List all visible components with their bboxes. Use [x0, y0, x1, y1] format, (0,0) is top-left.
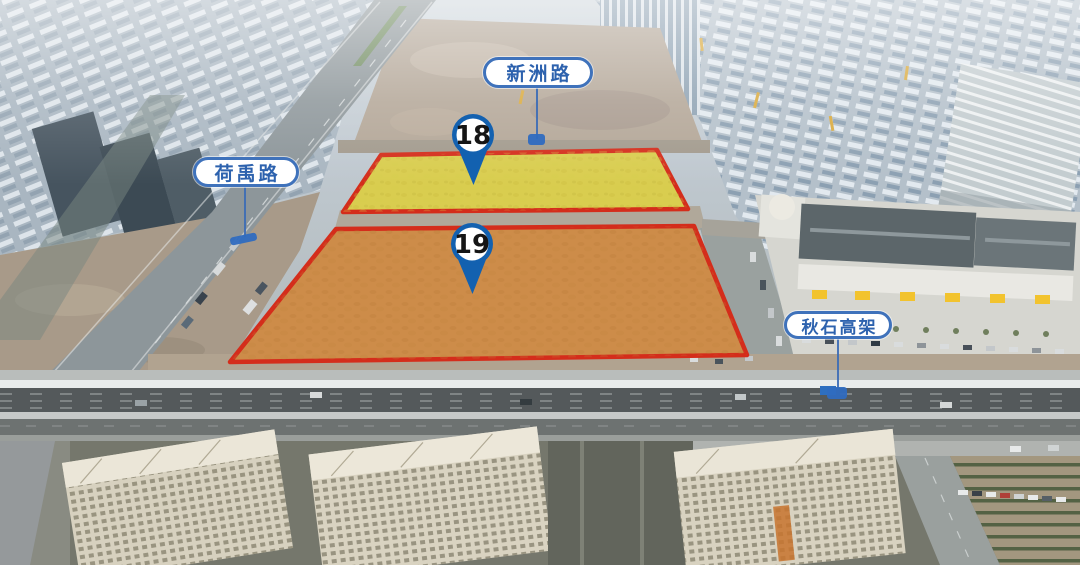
map-pin-19: 19	[448, 219, 496, 297]
apartment-towers-c	[674, 429, 906, 565]
label-pointer-marker	[229, 232, 257, 245]
courtyard-ground	[548, 441, 693, 565]
road-label-pill: 秋石高架	[784, 311, 892, 339]
label-pointer-line	[244, 186, 246, 237]
location-pin-icon: 19	[448, 219, 496, 297]
annotated-aerial-photo: 18 19 新洲路 荷禹路 秋石高架	[0, 0, 1080, 565]
domed-building	[769, 194, 795, 220]
label-pointer-line	[536, 87, 538, 139]
label-pointer-marker	[827, 387, 847, 399]
pin-number: 19	[454, 230, 490, 260]
median-barrier	[0, 412, 1080, 419]
label-pointer-marker	[528, 134, 545, 145]
road-label-heyu: 荷禹路	[193, 157, 299, 252]
elevated-highway	[0, 370, 1080, 441]
road-label-pill: 荷禹路	[193, 157, 299, 187]
road-label-pill: 新洲路	[483, 57, 593, 88]
guardrail	[0, 380, 1080, 388]
road-label-qiushi: 秋石高架	[784, 311, 892, 406]
label-pointer-line	[837, 338, 839, 390]
residential-area-bottom	[0, 426, 1080, 565]
road-label-xinzhou: 新洲路	[483, 57, 593, 152]
